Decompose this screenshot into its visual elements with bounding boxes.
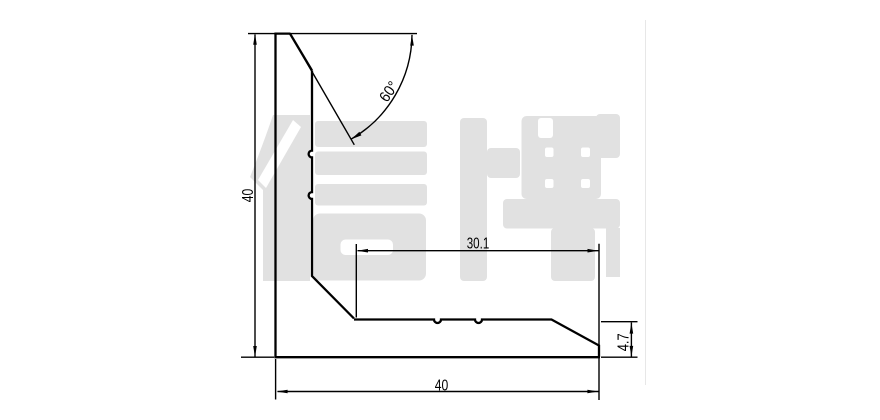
svg-text:4.7: 4.7 [616, 333, 633, 351]
svg-text:30.1: 30.1 [467, 235, 490, 252]
svg-text:40: 40 [240, 188, 257, 202]
svg-text:40: 40 [435, 378, 449, 395]
